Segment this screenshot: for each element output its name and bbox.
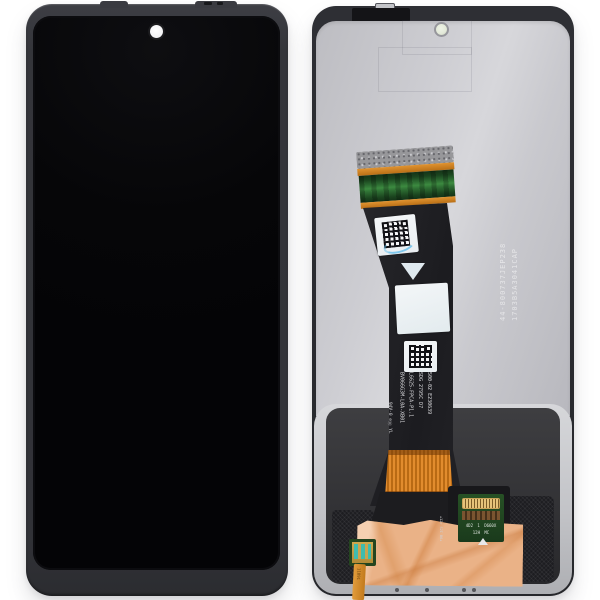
- flex-micro-marks: +12> S2I B6+: [439, 516, 443, 541]
- qr-code: [409, 345, 432, 368]
- flex-qr-label-lower: [404, 341, 437, 372]
- laser-etched-serials: 44-800737JEP238 1703B5A3041CAP: [497, 151, 521, 321]
- flex-triangle-marker: [401, 263, 425, 280]
- tape-outline: [378, 47, 472, 92]
- alignment-triangle-marker: [478, 538, 488, 545]
- flex-copper-trace-ribbon: [385, 450, 453, 496]
- front-top-tab-right: [195, 1, 237, 8]
- flex-white-sticker: [395, 283, 450, 335]
- flex-part-number-2: L6625-FPCA-P1.1: [405, 372, 414, 423]
- ribbon-edge: [385, 450, 453, 455]
- flex-tail-text: 11891: [356, 568, 362, 580]
- connector-pins: [354, 544, 371, 559]
- front-tab-slot: [204, 2, 212, 5]
- flex-cert-marks: 94V-0 ⊖Ⓤ YL: [386, 402, 392, 434]
- flex-part-numbers: BV066G3M-L0A-XB01 L6625-FPCA-P1.1 SDG 27…: [396, 372, 433, 423]
- flex-top-connector-group: [356, 145, 457, 209]
- front-tab-slot: [217, 2, 223, 5]
- etched-serial-1: 44-800737JEP238: [497, 151, 509, 321]
- board-connector-pcb: 4D2 1 D660X 12H MC: [458, 494, 504, 542]
- flex-tail: 11891: [352, 564, 366, 600]
- etched-serial-2: 1703B5A3041CAP: [509, 151, 521, 321]
- front-lcd-screen: [33, 16, 280, 570]
- frame-screw: [462, 588, 466, 592]
- front-camera-punch-hole: [150, 25, 163, 38]
- phone-front-assembly: [26, 4, 288, 596]
- phone-back-assembly: 44-800737JEP238 1703B5A3041CAP: [312, 6, 574, 596]
- frame-screw: [472, 588, 476, 592]
- flex-part-number-1: BV066G3M-L0A-XB01: [396, 372, 405, 423]
- flex-qr-label-upper: [374, 214, 419, 256]
- back-camera-punch-hole: [434, 22, 449, 37]
- product-photo-canvas: 44-800737JEP238 1703B5A3041CAP: [0, 0, 600, 600]
- frame-screw: [425, 588, 429, 592]
- trace-band: [462, 511, 500, 520]
- pcb-silkscreen-text: 4D2 1 D660X 12H MC: [460, 523, 502, 537]
- frame-screw: [395, 588, 399, 592]
- touch-connector: [349, 539, 376, 566]
- flex-part-number-4: 500-02 E230639: [424, 372, 433, 423]
- front-top-tab-left: [100, 1, 128, 8]
- flex-part-number-3: SDG 2795C D7: [415, 372, 424, 423]
- gold-contact-strip: [462, 498, 500, 509]
